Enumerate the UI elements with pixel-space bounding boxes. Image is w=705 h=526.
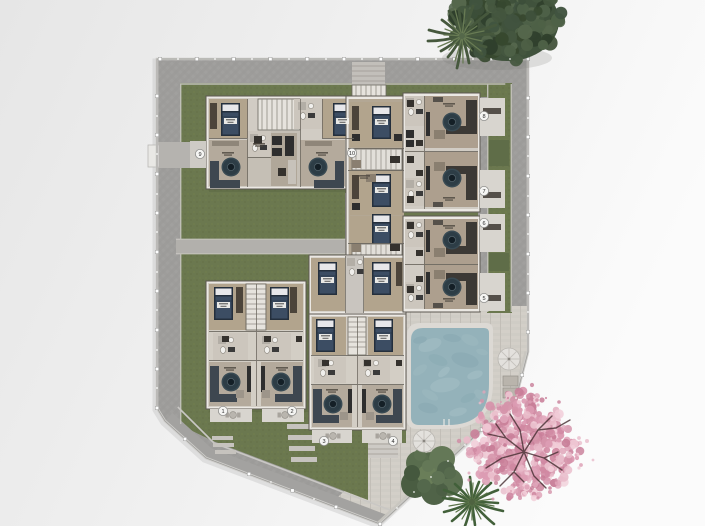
svg-text:5: 5 [482, 296, 485, 302]
svg-text:7: 7 [482, 189, 485, 195]
svg-text:6: 6 [482, 221, 485, 227]
svg-text:8: 8 [482, 114, 485, 120]
svg-text:3: 3 [322, 439, 325, 445]
svg-text:1: 1 [221, 409, 224, 415]
svg-text:2: 2 [290, 409, 293, 415]
svg-text:4: 4 [391, 439, 394, 445]
svg-text:10: 10 [349, 151, 355, 157]
svg-text:9: 9 [198, 152, 201, 158]
